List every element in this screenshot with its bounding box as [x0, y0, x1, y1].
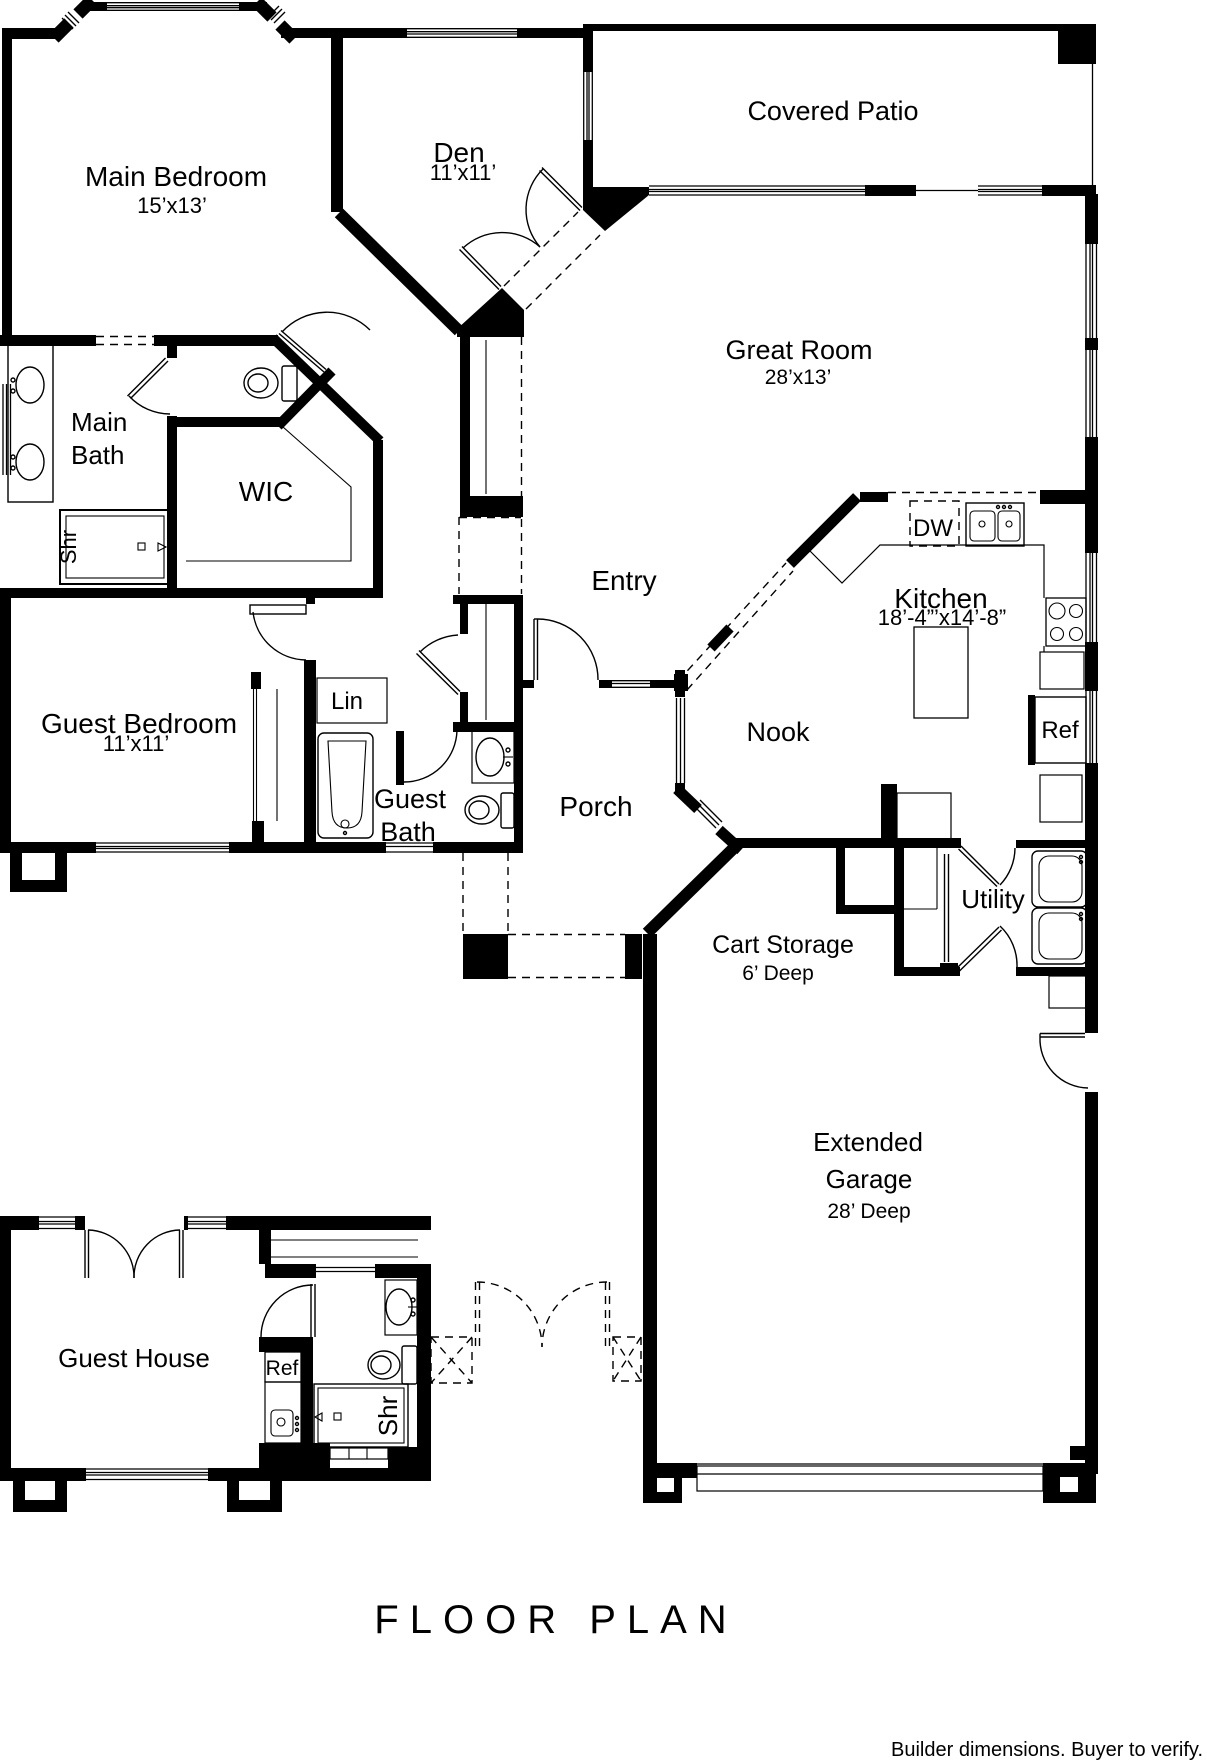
svg-text:Shr: Shr	[56, 530, 81, 564]
svg-text:FLOOR PLAN: FLOOR PLAN	[374, 1598, 737, 1642]
svg-text:Extended: Extended	[813, 1127, 923, 1157]
svg-text:Ref: Ref	[1041, 717, 1079, 744]
svg-text:18’-4”’x14’-8”: 18’-4”’x14’-8”	[878, 605, 1006, 630]
svg-text:Builder dimensions. Buyer to v: Builder dimensions. Buyer to verify.	[891, 1739, 1203, 1761]
svg-text:Lin: Lin	[331, 688, 363, 715]
svg-text:WIC: WIC	[239, 476, 293, 507]
svg-text:Utility: Utility	[961, 884, 1025, 914]
svg-text:Bath: Bath	[380, 817, 436, 847]
svg-text:Guest House: Guest House	[58, 1343, 210, 1373]
svg-text:Nook: Nook	[746, 717, 810, 747]
svg-text:Main Bedroom: Main Bedroom	[85, 161, 267, 192]
svg-text:15’x13’: 15’x13’	[137, 193, 207, 218]
svg-text:Covered Patio: Covered Patio	[747, 96, 918, 126]
svg-text:Main: Main	[71, 407, 127, 437]
svg-text:Garage: Garage	[826, 1164, 913, 1194]
svg-text:Porch: Porch	[559, 791, 632, 822]
svg-text:Bath: Bath	[71, 440, 125, 470]
svg-text:Shr: Shr	[373, 1395, 403, 1436]
svg-text:DW: DW	[913, 515, 953, 542]
svg-text:Entry: Entry	[591, 565, 656, 596]
svg-text:28’ Deep: 28’ Deep	[827, 1200, 910, 1223]
svg-text:11’x11’: 11’x11’	[103, 731, 169, 756]
svg-text:Great Room: Great Room	[725, 335, 872, 365]
svg-text:Ref: Ref	[266, 1357, 299, 1380]
svg-text:Cart Storage: Cart Storage	[712, 931, 854, 959]
svg-text:6’ Deep: 6’ Deep	[742, 962, 814, 985]
svg-text:Guest: Guest	[374, 784, 447, 814]
svg-text:11’x11’: 11’x11’	[430, 160, 496, 185]
svg-text:28’x13’: 28’x13’	[765, 366, 832, 389]
